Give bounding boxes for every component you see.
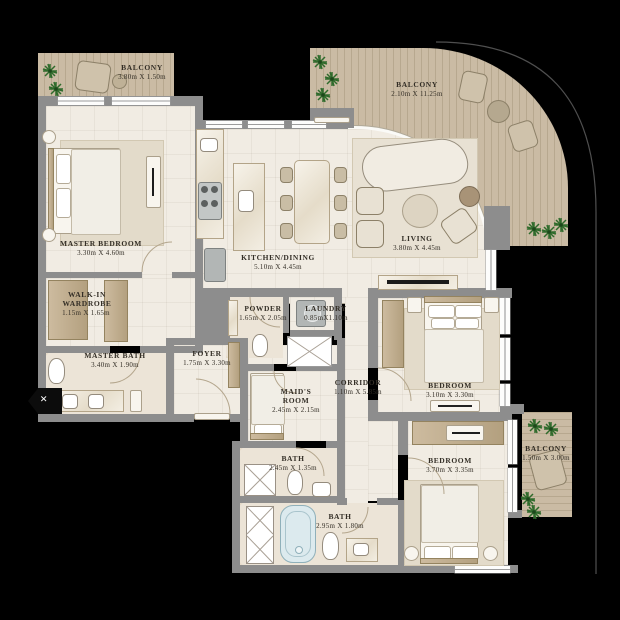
living-corner-pier <box>484 206 510 250</box>
pillow <box>56 154 71 184</box>
room-label-maids-2: ROOM <box>283 396 310 405</box>
cut-x-icon: × <box>40 391 47 407</box>
headboard <box>250 433 284 440</box>
room-label-foyer: FOYER <box>192 349 221 358</box>
linen-closet <box>287 336 332 367</box>
wall <box>38 96 46 422</box>
wall <box>337 338 345 505</box>
room-dims-powder: 1.65m X 2.05m <box>239 314 287 322</box>
armchair <box>356 187 384 215</box>
room-dims-laundry: 0.85mX1.10m <box>304 314 348 322</box>
nightstand <box>483 546 498 561</box>
wall <box>377 498 398 505</box>
pillow <box>428 305 455 318</box>
tv <box>152 168 154 196</box>
wall <box>240 441 296 448</box>
room-label-balcony-tl: BALCONY <box>121 63 163 72</box>
room-dims-maids: 2.45m X 2.15m <box>272 406 320 414</box>
dining-chair <box>280 223 293 239</box>
dining-chair <box>334 167 347 183</box>
room-dims-wardrobe: 1.15m X 1.65m <box>62 309 110 317</box>
fridge <box>204 248 226 282</box>
toilet <box>287 470 303 495</box>
wall <box>248 364 274 371</box>
headboard <box>420 558 478 564</box>
island-sink <box>238 190 254 212</box>
window <box>206 121 242 128</box>
room-dims-master-bedroom: 3.30m X 4.60m <box>77 249 125 257</box>
sink <box>312 482 331 497</box>
nightstand <box>42 130 56 144</box>
wall <box>326 441 338 448</box>
pouf <box>459 186 480 207</box>
wall <box>368 412 512 421</box>
room-dims-balcony-tr: 2.10m X 11.25m <box>391 90 442 98</box>
entry-door-slab <box>194 413 230 420</box>
duvet <box>251 375 285 425</box>
room-dims-bath-upper: 2.45m X 1.35m <box>269 464 317 472</box>
wall <box>238 496 338 503</box>
room-label-corridor: CORRIDOR <box>335 378 381 387</box>
sink <box>353 543 369 556</box>
headboard <box>48 148 54 234</box>
room-label-living: LIVING <box>401 234 432 243</box>
window <box>58 97 104 105</box>
room-label-laundry: LAUNDRY <box>305 304 346 313</box>
wall <box>337 498 347 505</box>
nightstand <box>407 297 422 313</box>
room-dims-foyer: 1.75m X 3.30m <box>183 359 231 367</box>
window <box>112 97 170 105</box>
wall <box>240 338 248 448</box>
pillow <box>455 305 482 318</box>
tv <box>387 280 449 284</box>
wall <box>500 288 512 298</box>
window <box>500 298 510 334</box>
wall <box>203 288 230 345</box>
nightstand <box>404 546 419 561</box>
sink <box>88 394 104 409</box>
wall <box>228 288 342 297</box>
burner <box>211 186 218 193</box>
room-dims-living: 3.80m X 4.45m <box>393 244 441 252</box>
nightstand <box>484 297 499 313</box>
room-dims-bedroom-bottom: 3.70m X 3.35m <box>426 466 474 474</box>
headboard <box>424 296 482 303</box>
room-label-kitchen: KITCHEN/DINING <box>241 253 315 262</box>
corridor-vestibule-floor <box>368 421 398 501</box>
room-label-balcony-br: BALCONY <box>525 444 567 453</box>
room-label-master-bedroom: MASTER BEDROOM <box>60 239 142 248</box>
window <box>455 566 510 573</box>
pillow <box>455 318 479 329</box>
wardrobe-handle <box>452 432 480 434</box>
duvet <box>71 149 121 235</box>
wall <box>368 400 378 412</box>
room-label-powder: POWDER <box>244 304 281 313</box>
room-label-master-bath: MASTER BATH <box>84 351 145 360</box>
room-dims-balcony-br: 1.50m X 3.00m <box>522 454 570 462</box>
dining-chair <box>280 167 293 183</box>
room-label-wardrobe-1: WALK-IN <box>68 290 106 299</box>
armchair <box>356 220 384 248</box>
dining-chair <box>334 195 347 211</box>
kitchen-sink <box>200 138 218 152</box>
burner <box>201 200 208 207</box>
room-label-bedroom-bottom: BEDROOM <box>428 456 472 465</box>
dining-chair <box>334 223 347 239</box>
room-label-wardrobe-2: WARDROBE <box>63 299 112 308</box>
dining-table <box>294 160 330 244</box>
powder-vanity <box>228 300 238 336</box>
room-dims-bath-lower: 2.95m X 1.80m <box>316 522 364 530</box>
wall <box>38 414 174 422</box>
window <box>508 468 517 512</box>
wall <box>232 441 240 573</box>
floor-plan: × <box>0 0 620 620</box>
coffee-table <box>402 194 438 228</box>
dining-chair <box>280 195 293 211</box>
wall <box>166 338 174 422</box>
wall <box>174 414 194 422</box>
toilet <box>252 334 268 357</box>
toilet <box>322 532 339 560</box>
nightstand <box>42 228 56 242</box>
window <box>508 420 517 464</box>
room-dims-bedroom-mid: 3.10m X 3.30m <box>426 391 474 399</box>
room-label-maids-1: MAID'S <box>281 387 312 396</box>
room-label-bath-lower: BATH <box>328 512 351 521</box>
toilet <box>48 358 65 384</box>
window <box>248 121 284 128</box>
window <box>500 338 510 380</box>
room-label-bedroom-mid: BEDROOM <box>428 381 472 390</box>
pillow <box>56 188 71 218</box>
wall <box>172 272 203 278</box>
corridor-floor <box>345 297 368 505</box>
window <box>486 250 496 290</box>
sink <box>62 394 78 409</box>
wall <box>368 298 378 368</box>
duvet <box>421 485 479 543</box>
pillow <box>431 318 455 329</box>
burner <box>201 186 208 193</box>
balcony-chair <box>74 60 112 94</box>
room-label-balcony-tr: BALCONY <box>396 80 438 89</box>
shower-shelf <box>130 390 142 412</box>
room-label-bath-upper: BATH <box>281 454 304 463</box>
room-dims-corridor: 1.10m X 5.85m <box>334 388 382 396</box>
entry-cut-marker: × <box>28 388 62 414</box>
wall <box>46 272 142 278</box>
drain <box>295 546 303 554</box>
balcony-door-slab <box>314 117 350 123</box>
shower <box>246 506 274 564</box>
balcony-round-table <box>487 100 510 123</box>
room-dims-master-bath: 3.40m X 1.90m <box>91 361 139 369</box>
window <box>500 384 510 406</box>
wardrobe <box>382 300 404 368</box>
room-dims-kitchen: 5.10m X 4.45m <box>254 263 302 271</box>
room-dims-balcony-tl: 3.80m X 1.50m <box>118 73 166 81</box>
burner <box>211 200 218 207</box>
dresser-handle <box>438 405 472 407</box>
duvet <box>424 329 484 383</box>
